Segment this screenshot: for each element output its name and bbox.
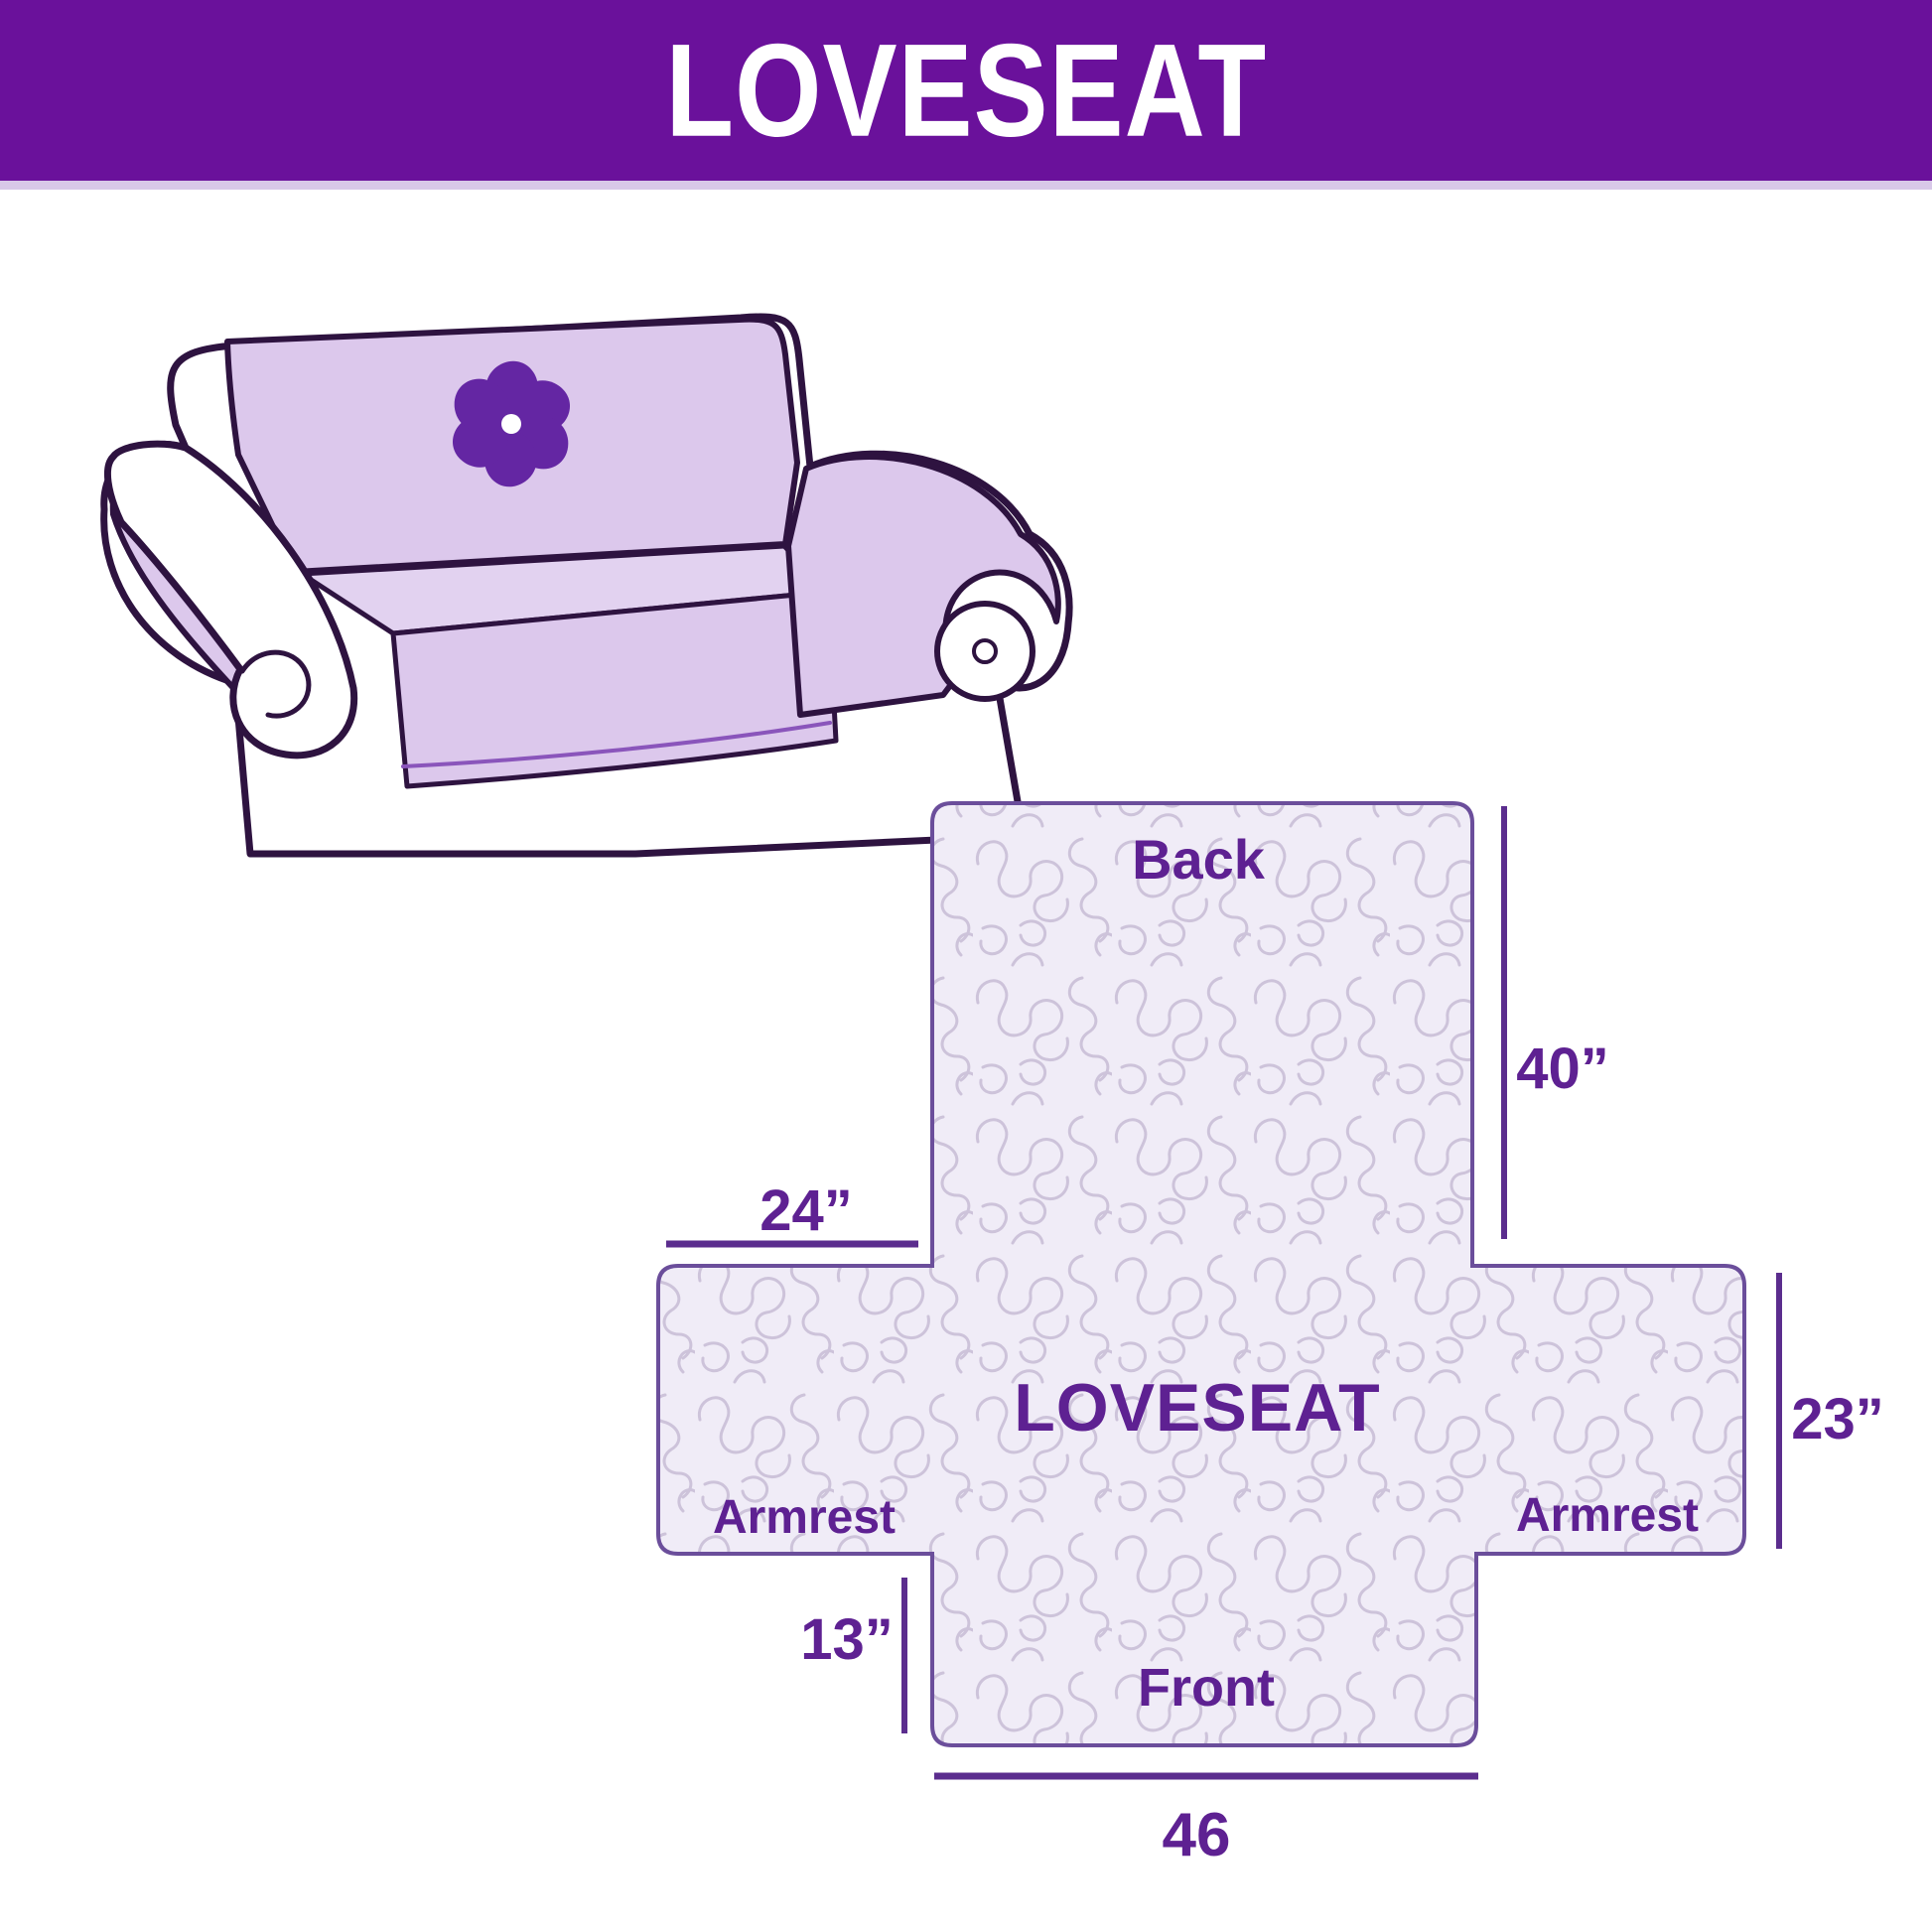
front-width-dimension: 46 xyxy=(1163,1805,1231,1866)
cover-cross-shape xyxy=(658,803,1744,1745)
front-section-label: Front xyxy=(1138,1661,1275,1715)
armrest-left-label: Armrest xyxy=(713,1494,896,1542)
side-depth-dimension: 23” xyxy=(1791,1391,1884,1449)
armrest-right-label: Armrest xyxy=(1516,1492,1699,1540)
cover-dimension-diagram xyxy=(0,0,1932,1932)
diagram-center-label: LOVESEAT xyxy=(1014,1374,1380,1442)
armrest-width-dimension: 24” xyxy=(759,1182,853,1240)
back-height-dimension: 40” xyxy=(1516,1040,1609,1098)
front-drop-dimension: 13” xyxy=(800,1611,894,1669)
loveseat-cover-infographic: { "header": { "title": "LOVESEAT", "back… xyxy=(0,0,1932,1932)
back-section-label: Back xyxy=(1132,832,1265,888)
